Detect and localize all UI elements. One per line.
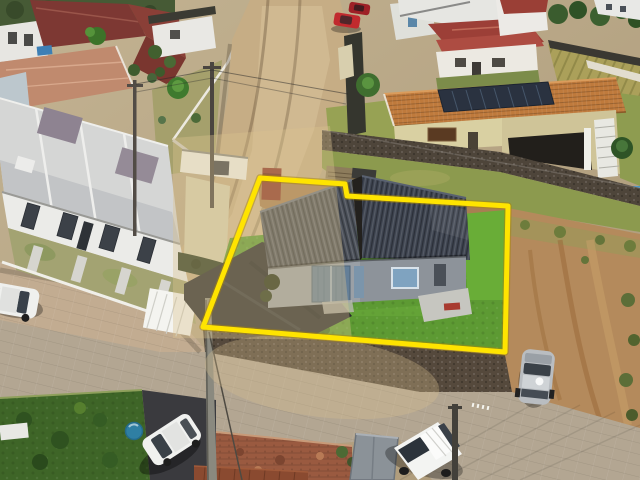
dark-pole xyxy=(452,404,458,480)
aerial-photo-real-estate xyxy=(0,0,640,480)
watermark-band xyxy=(173,126,352,340)
window xyxy=(392,268,418,288)
red-bench xyxy=(444,302,460,310)
blue-tarp xyxy=(37,45,53,56)
aerial-photo xyxy=(0,0,640,480)
